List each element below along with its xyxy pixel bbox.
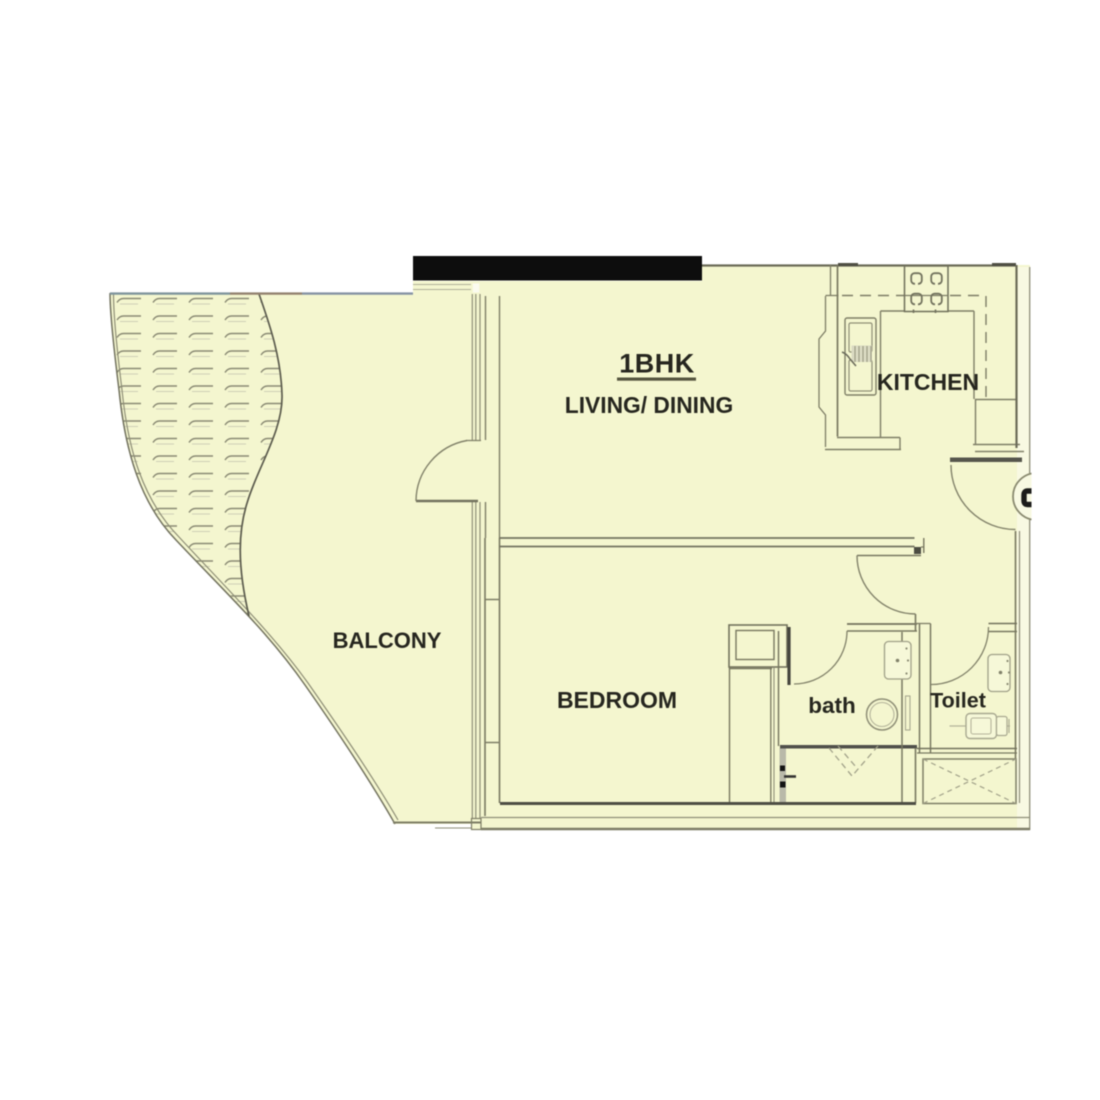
svg-text:bath: bath <box>808 693 856 718</box>
svg-text:BALCONY: BALCONY <box>333 628 442 653</box>
svg-text:LIVING/ DINING: LIVING/ DINING <box>565 392 733 418</box>
svg-text:BEDROOM: BEDROOM <box>557 687 677 713</box>
svg-text:Toilet: Toilet <box>930 689 986 713</box>
svg-text:KITCHEN: KITCHEN <box>877 369 979 395</box>
svg-text:1BHK: 1BHK <box>619 349 695 379</box>
